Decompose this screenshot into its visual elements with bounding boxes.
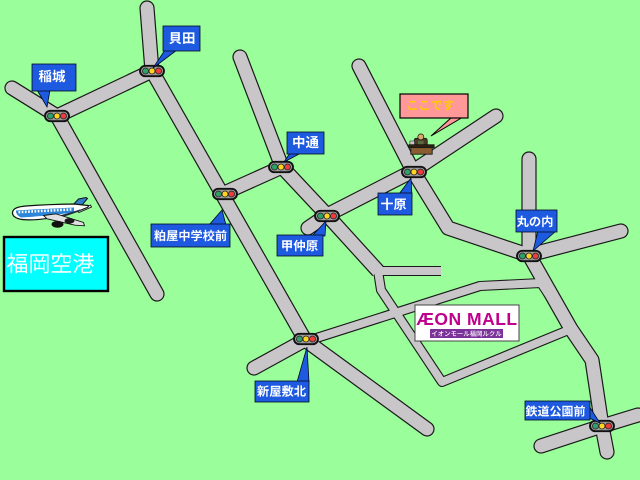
svg-text:ÆON MALL: ÆON MALL (416, 309, 517, 329)
